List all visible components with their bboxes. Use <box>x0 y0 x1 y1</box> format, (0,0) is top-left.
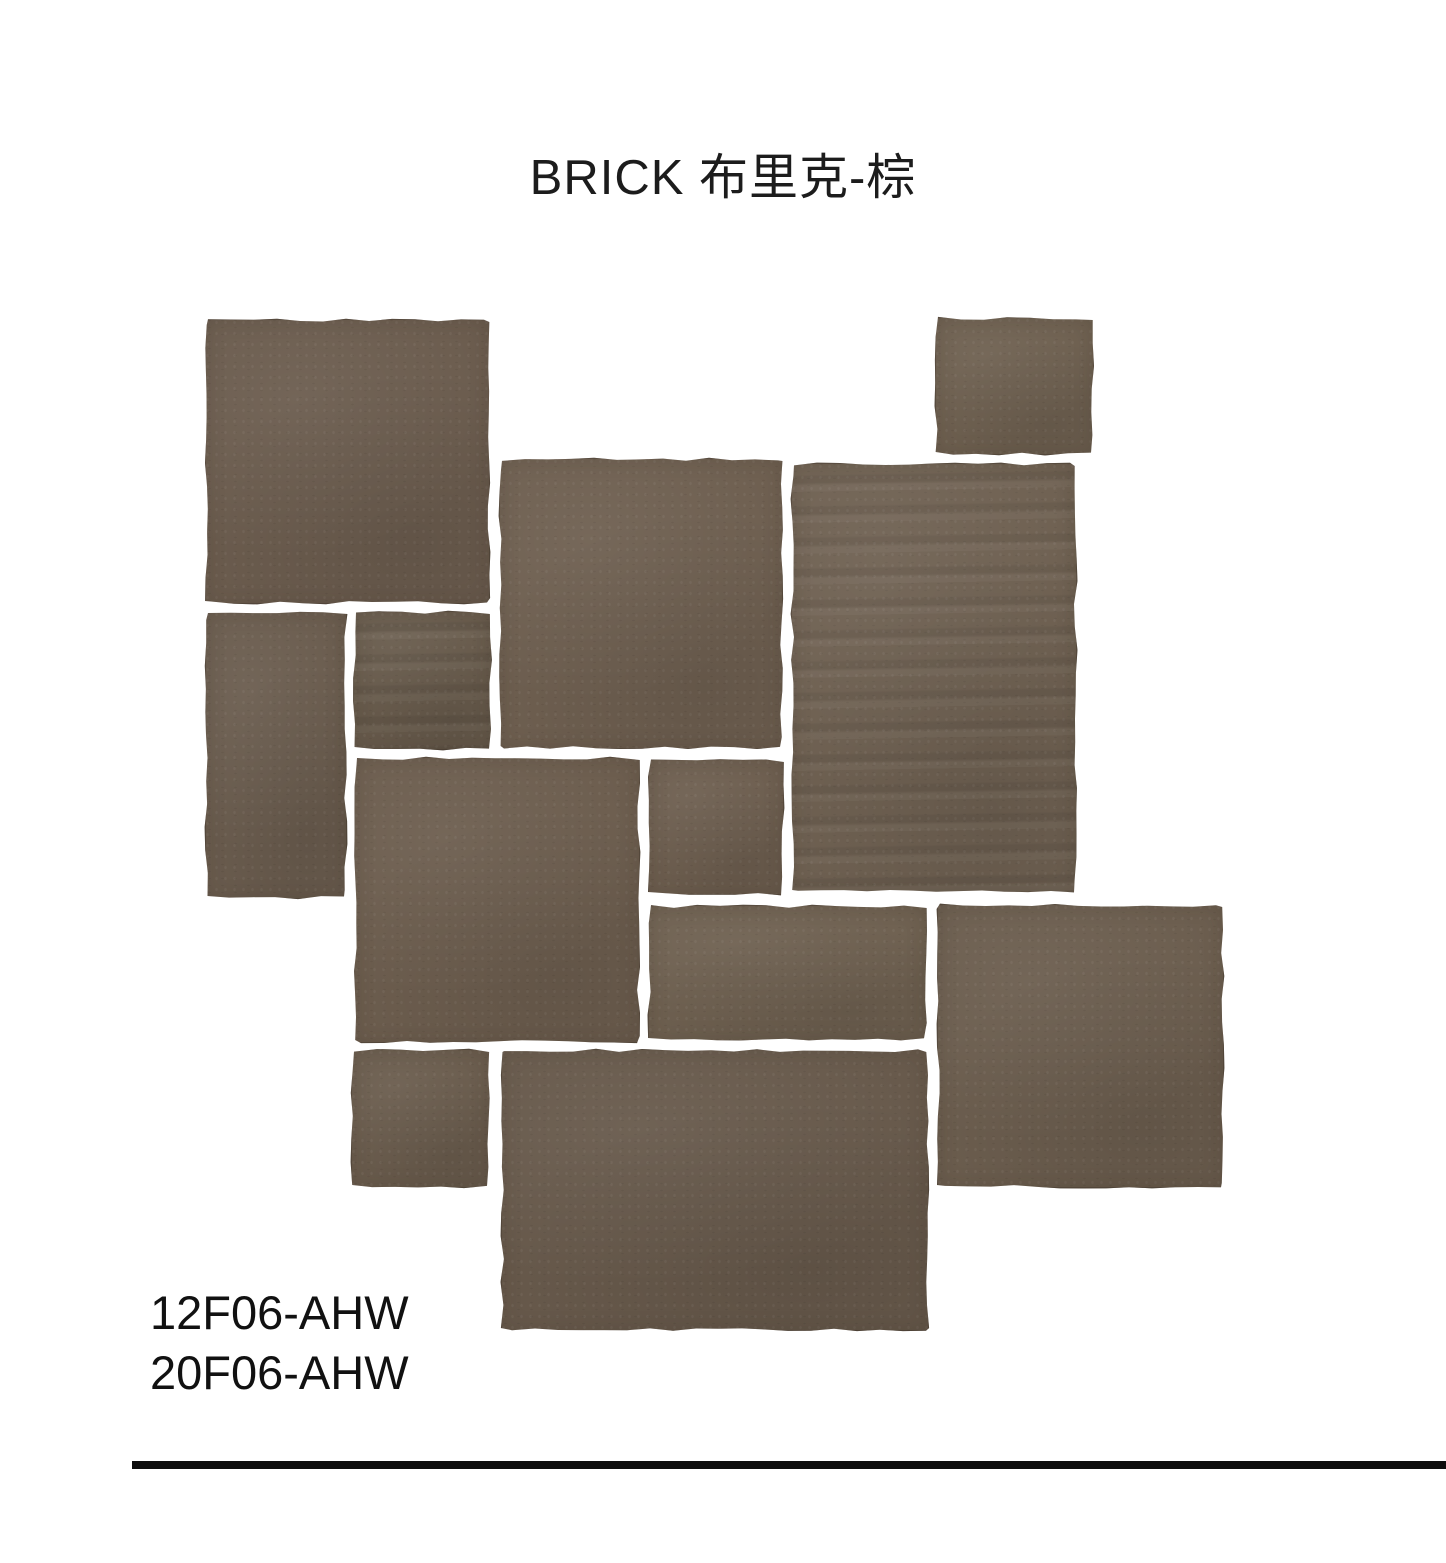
tile-large-square-center <box>352 755 642 1045</box>
bottom-divider-line <box>132 1461 1446 1469</box>
tile-small-rect-top-right <box>933 315 1096 457</box>
tile-large-wide-rect-bottom <box>499 1047 931 1333</box>
product-code-1: 12F06-AHW <box>150 1283 409 1343</box>
tile-tall-rect-left <box>203 609 349 901</box>
tile-large-square-upper-center <box>497 456 785 751</box>
tile-tall-rect-right <box>789 461 1079 895</box>
catalog-page: BRICK 布里克-棕 12F06-AHW 20F06-AHW <box>0 0 1446 1563</box>
product-code-2: 20F06-AHW <box>150 1343 409 1403</box>
tile-large-square-top-left <box>203 317 492 606</box>
tile-wide-rect-center <box>646 903 929 1043</box>
tile-small-square-lower-left <box>349 1047 492 1190</box>
tile-small-square-upper <box>351 609 494 752</box>
tile-small-square-center <box>646 757 786 897</box>
product-codes: 12F06-AHW 20F06-AHW <box>150 1283 409 1403</box>
tile-large-square-right <box>935 902 1226 1190</box>
